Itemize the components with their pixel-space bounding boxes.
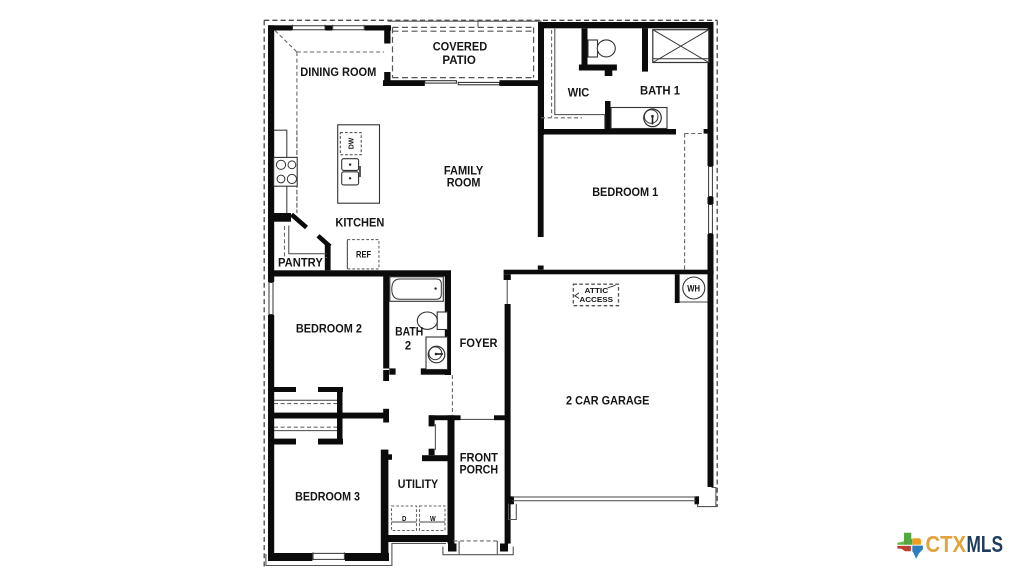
- svg-text:KITCHEN: KITCHEN: [335, 216, 384, 230]
- svg-text:FOYER: FOYER: [460, 336, 498, 350]
- svg-text:ATTIC: ATTIC: [585, 286, 609, 295]
- svg-text:BEDROOM 3: BEDROOM 3: [295, 489, 360, 503]
- svg-text:ACCESS: ACCESS: [579, 295, 613, 304]
- svg-text:2 CAR GARAGE: 2 CAR GARAGE: [566, 393, 649, 407]
- svg-text:MLS: MLS: [967, 531, 1004, 557]
- svg-text:DW: DW: [347, 137, 356, 149]
- svg-text:BEDROOM 1: BEDROOM 1: [592, 185, 658, 199]
- svg-text:BATH: BATH: [395, 324, 423, 338]
- svg-text:PORCH: PORCH: [460, 463, 499, 477]
- svg-text:WIC: WIC: [568, 86, 590, 100]
- svg-text:REF: REF: [356, 250, 372, 260]
- svg-text:W: W: [430, 514, 436, 523]
- svg-text:COVERED: COVERED: [433, 40, 488, 54]
- svg-text:UTILITY: UTILITY: [398, 477, 439, 491]
- svg-text:ROOM: ROOM: [447, 176, 481, 190]
- svg-text:CTX: CTX: [926, 531, 967, 557]
- svg-text:2: 2: [405, 339, 411, 353]
- svg-text:D: D: [402, 514, 407, 523]
- svg-text:DINING ROOM: DINING ROOM: [300, 65, 376, 79]
- svg-text:BATH 1: BATH 1: [640, 84, 680, 98]
- svg-text:PANTRY: PANTRY: [278, 256, 323, 270]
- svg-text:PATIO: PATIO: [442, 53, 476, 67]
- svg-text:BEDROOM 2: BEDROOM 2: [296, 322, 362, 336]
- svg-text:WH: WH: [687, 283, 700, 293]
